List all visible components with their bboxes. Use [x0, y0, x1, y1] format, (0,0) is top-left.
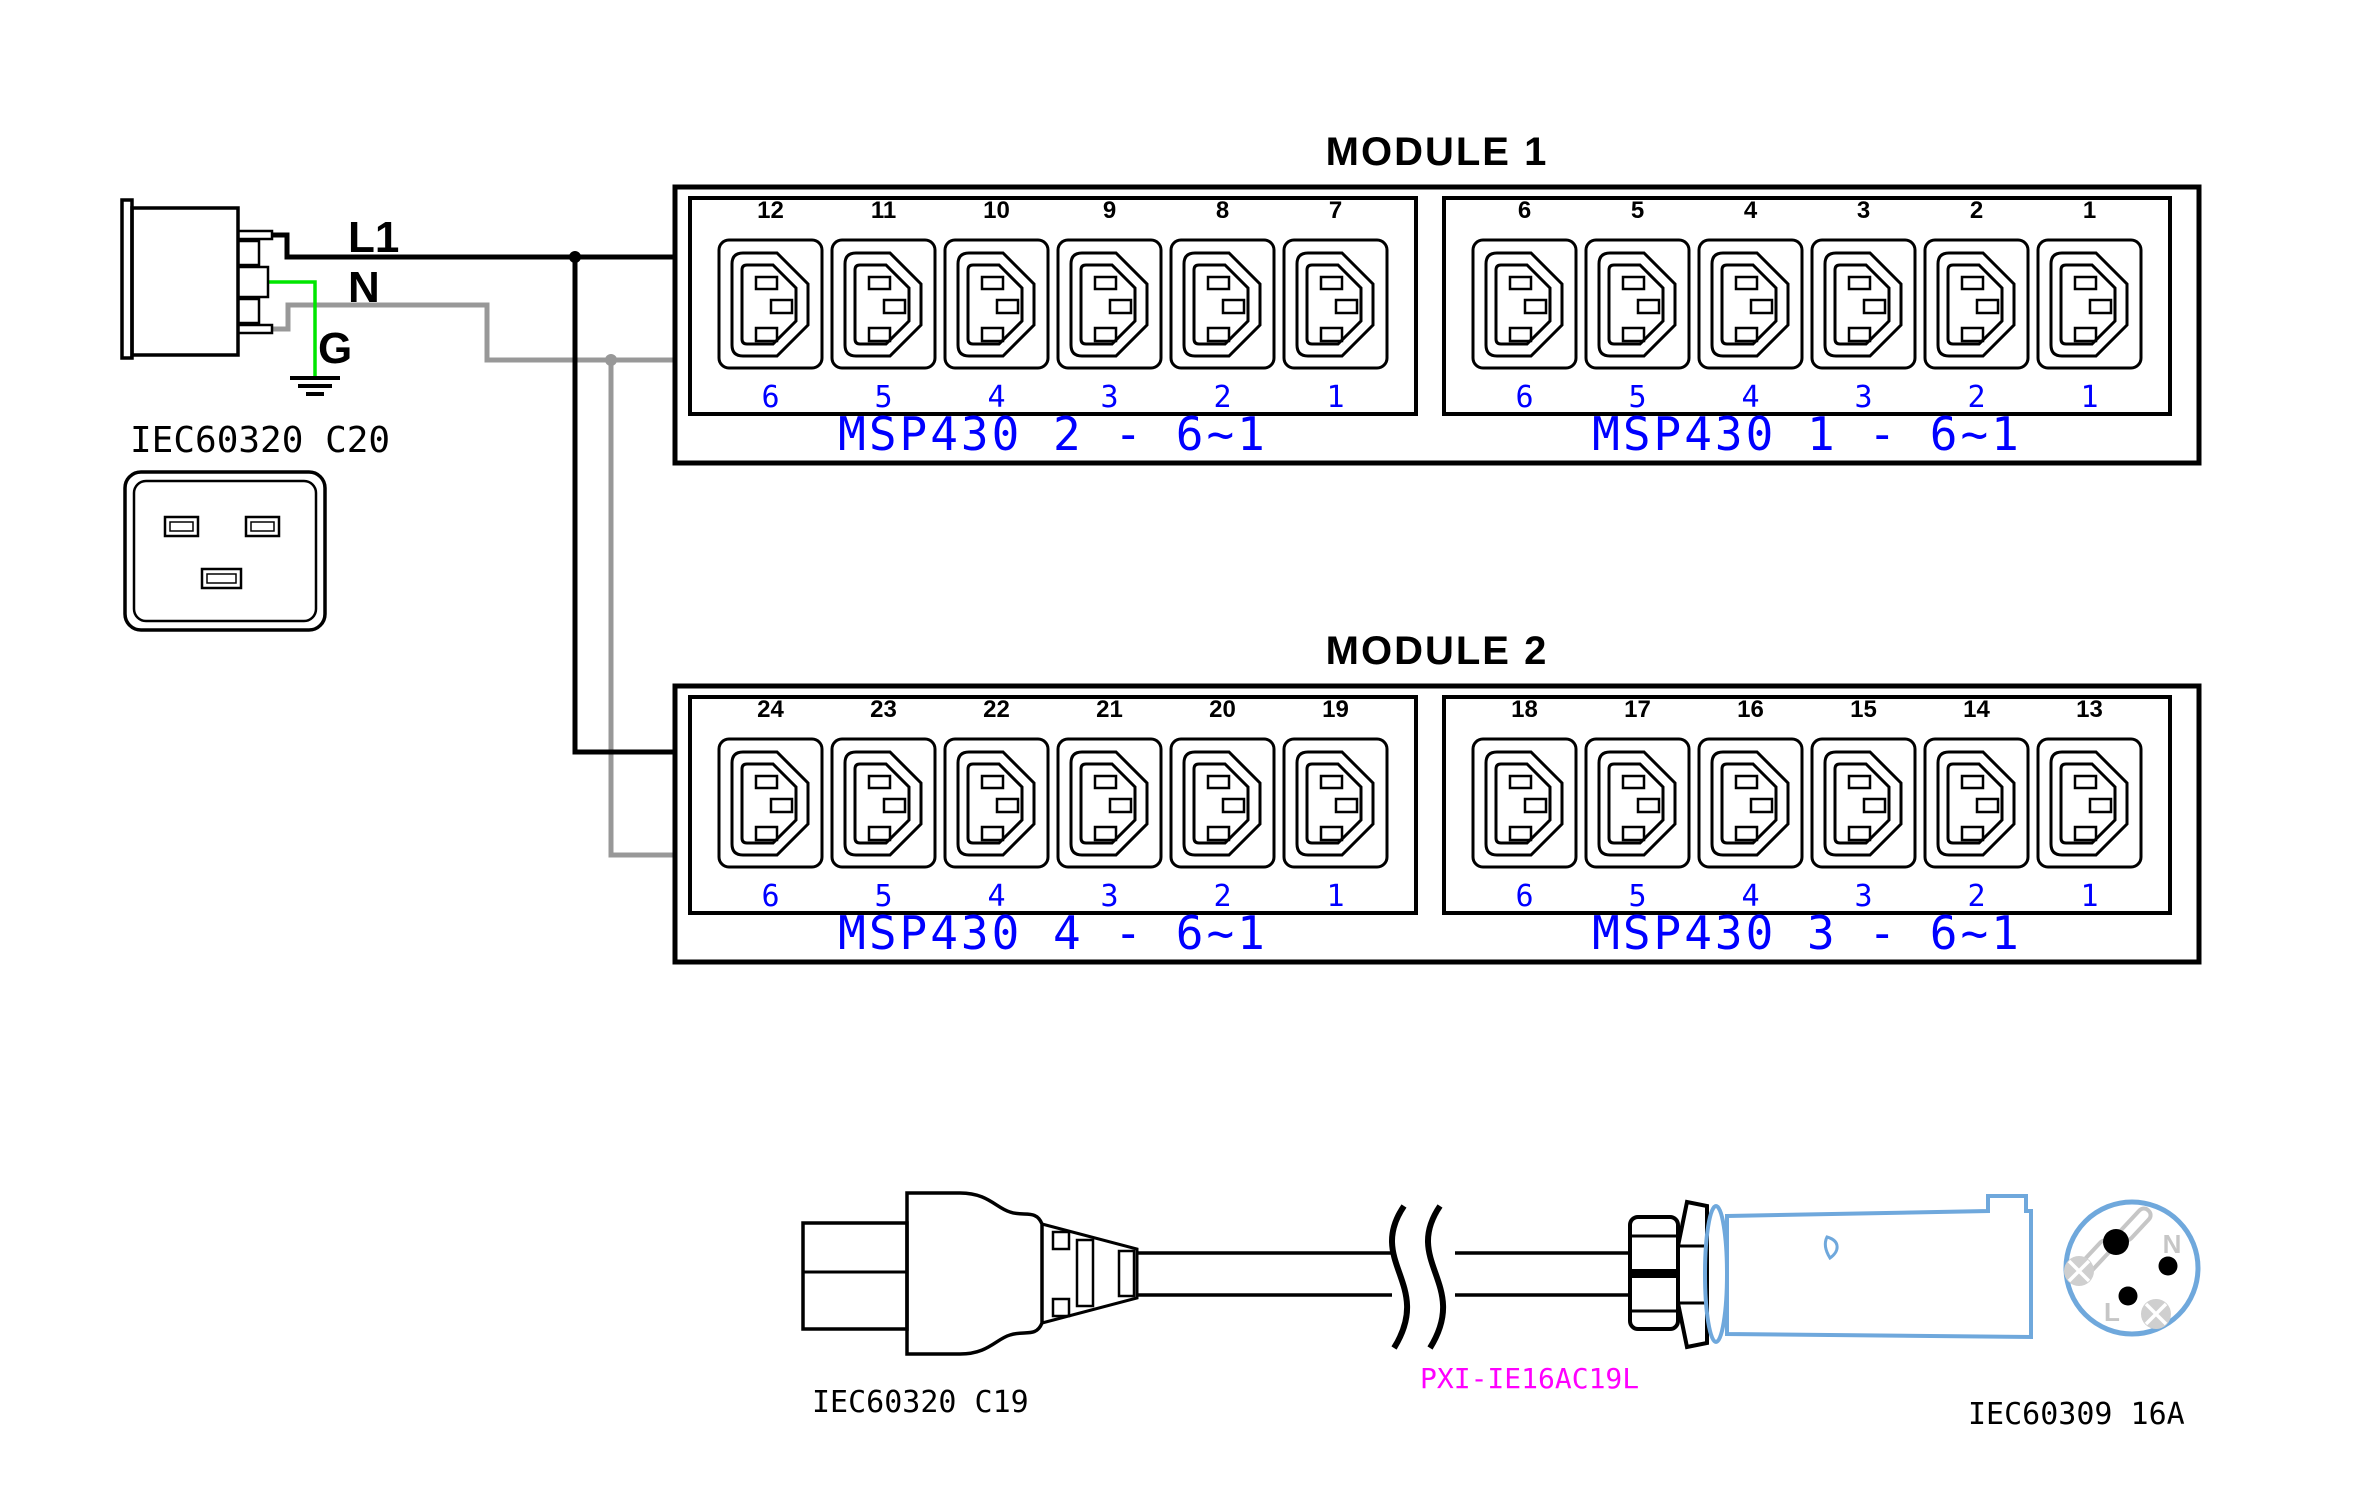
- port-number: 3: [1854, 380, 1872, 415]
- cable-break-left: [1392, 1206, 1407, 1348]
- c20-line-pin: [238, 241, 259, 265]
- cable-lines: [1137, 1253, 1630, 1295]
- outlet-slot-top: [1321, 277, 1342, 289]
- outlet-c13: [1058, 240, 1161, 368]
- outlet-number: 3: [1857, 197, 1870, 224]
- bank-label: MSP430 2 - 6~1: [838, 407, 1268, 461]
- bank-label: MSP430 1 - 6~1: [1592, 407, 2022, 461]
- outlet-slot-middle: [1864, 300, 1885, 313]
- outlet-slot-top: [1736, 776, 1757, 788]
- outlet-slot-middle: [1525, 799, 1546, 812]
- outlet-slot-middle: [1977, 300, 1998, 313]
- c19-connector-label: IEC60320 C19: [812, 1385, 1029, 1420]
- outlet-slot-middle: [2090, 799, 2111, 812]
- outlet-number: 12: [757, 197, 784, 224]
- port-number: 5: [1628, 380, 1646, 415]
- outlet-c13: [945, 739, 1048, 867]
- outlet-slot-top: [1849, 776, 1870, 788]
- outlet-number: 19: [1322, 696, 1349, 723]
- outlet-slot-bottom: [1208, 827, 1229, 840]
- outlet-slot-middle: [1525, 300, 1546, 313]
- outlet-slot-middle: [771, 799, 792, 812]
- port-number: 1: [2080, 879, 2098, 914]
- outlet-slot-bottom: [869, 827, 890, 840]
- c20-inlet-side-view: [122, 200, 272, 358]
- outlet-slot-middle: [1223, 799, 1244, 812]
- outlet-slot-middle: [771, 300, 792, 313]
- outlet-number: 15: [1850, 696, 1877, 723]
- outlet-number: 11: [871, 197, 896, 224]
- outlet-slot-bottom: [756, 328, 777, 341]
- ground-wire-label: G: [318, 324, 352, 373]
- port-number: 5: [874, 380, 892, 415]
- outlet-slot-top: [1510, 277, 1531, 289]
- plug-pin-earth: [2103, 1229, 2129, 1255]
- outlet-slot-middle: [884, 799, 905, 812]
- c20-neutral-terminal-tab: [238, 325, 272, 333]
- port-number: 4: [1741, 380, 1759, 415]
- diagram-canvas: L1 N G IEC60320 C20 MODULE 1MSP430 2 - 6…: [0, 0, 2357, 1509]
- outlet-c13: [1586, 240, 1689, 368]
- outlet-slot-bottom: [982, 328, 1003, 341]
- neutral-wire: [272, 305, 675, 855]
- pdu-wiring-diagram: L1 N G IEC60320 C20 MODULE 1MSP430 2 - 6…: [0, 0, 2357, 1509]
- c19-relief-end-slot: [1119, 1251, 1134, 1296]
- neutral-junction-dot: [605, 354, 617, 366]
- outlet-slot-bottom: [1736, 827, 1757, 840]
- outlet-slot-top: [756, 277, 777, 289]
- outlet-slot-middle: [2090, 300, 2111, 313]
- outlet-c13: [719, 240, 822, 368]
- outlet-slot-bottom: [1510, 328, 1531, 341]
- port-number: 2: [1213, 879, 1231, 914]
- c19-body: [907, 1193, 1042, 1354]
- outlet-c13: [1586, 739, 1689, 867]
- outlet-number: 24: [757, 696, 784, 723]
- outlet-slot-middle: [1223, 300, 1244, 313]
- c19-relief-slot: [1077, 1240, 1093, 1306]
- outlet-c13: [1171, 240, 1274, 368]
- outlet-slot-middle: [1977, 799, 1998, 812]
- outlet-slot-bottom: [1510, 827, 1531, 840]
- earth-ground-symbol: [290, 378, 340, 394]
- gland-nut-lines: [1678, 1246, 1707, 1303]
- outlet-c13: [1699, 240, 1802, 368]
- outlet-slot-bottom: [1962, 827, 1983, 840]
- neutral-wire-to-module2: [611, 360, 673, 855]
- outlet-slot-middle: [997, 300, 1018, 313]
- port-number: 2: [1213, 380, 1231, 415]
- c20-inlet-face-view: [125, 472, 325, 630]
- iec60309-plug-face-view: N L: [2064, 1202, 2198, 1334]
- outlet-number: 8: [1216, 197, 1229, 224]
- outlet-modules: MODULE 1MSP430 2 - 6~1126115104938271MSP…: [675, 130, 2199, 962]
- c20-line-terminal-tab: [238, 231, 272, 239]
- c20-face-slot-neutral: [246, 517, 279, 536]
- outlet-slot-middle: [997, 799, 1018, 812]
- line-wire-to-module2: [575, 257, 673, 752]
- outlet-slot-bottom: [1623, 328, 1644, 341]
- port-number: 5: [874, 879, 892, 914]
- plug-neutral-letter: N: [2163, 1229, 2182, 1259]
- port-number: 4: [987, 879, 1005, 914]
- module-title: MODULE 1: [1326, 130, 1549, 174]
- port-number: 1: [1326, 380, 1344, 415]
- outlet-c13: [2038, 739, 2141, 867]
- outlet-number: 9: [1103, 197, 1116, 224]
- outlet-slot-top: [1736, 277, 1757, 289]
- c20-face-outer: [125, 472, 325, 630]
- plug-line-letter: L: [2104, 1297, 2120, 1327]
- outlet-number: 21: [1096, 696, 1123, 723]
- outlet-c13: [1058, 739, 1161, 867]
- outlet-slot-top: [1208, 277, 1229, 289]
- outlet-number: 16: [1737, 696, 1764, 723]
- port-number: 2: [1967, 879, 1985, 914]
- gland-band: [1630, 1269, 1678, 1278]
- outlet-slot-bottom: [1208, 328, 1229, 341]
- c20-face-slot-ground: [202, 569, 241, 588]
- outlet-slot-bottom: [1849, 328, 1870, 341]
- outlet-number: 5: [1631, 197, 1644, 224]
- bank-label: MSP430 3 - 6~1: [1592, 906, 2022, 960]
- outlet-c13: [1812, 240, 1915, 368]
- c19-plug-side-view: [803, 1193, 1137, 1354]
- outlet-number: 7: [1329, 197, 1342, 224]
- port-number: 1: [1326, 879, 1344, 914]
- outlet-slot-bottom: [1623, 827, 1644, 840]
- outlet-slot-top: [1095, 776, 1116, 788]
- outlet-slot-middle: [884, 300, 905, 313]
- port-number: 5: [1628, 879, 1646, 914]
- outlet-slot-top: [2075, 776, 2096, 788]
- outlet-slot-top: [2075, 277, 2096, 289]
- outlet-c13: [1284, 240, 1387, 368]
- outlet-c13: [832, 739, 935, 867]
- cable-part-number: PXI-IE16AC19L: [1420, 1362, 1639, 1395]
- outlet-c13: [945, 240, 1048, 368]
- outlet-slot-bottom: [2075, 328, 2096, 341]
- outlet-number: 13: [2076, 696, 2103, 723]
- outlet-slot-top: [756, 776, 777, 788]
- outlet-slot-bottom: [1321, 827, 1342, 840]
- outlet-number: 18: [1511, 696, 1538, 723]
- outlet-slot-bottom: [1736, 328, 1757, 341]
- iec60309-connector-label: IEC60309 16A: [1968, 1397, 2185, 1432]
- c19-relief-notch-top: [1053, 1232, 1069, 1249]
- plug-pin-neutral: [2159, 1257, 2178, 1276]
- port-number: 1: [2080, 380, 2098, 415]
- outlet-slot-bottom: [1962, 328, 1983, 341]
- outlet-slot-bottom: [1095, 328, 1116, 341]
- module-2: MODULE 2MSP430 4 - 6~1246235224213202191…: [675, 629, 2199, 962]
- outlet-c13: [1925, 739, 2028, 867]
- plug-body: [1727, 1196, 2031, 1337]
- outlet-slot-top: [1321, 776, 1342, 788]
- port-number: 2: [1967, 380, 1985, 415]
- outlet-slot-top: [1095, 277, 1116, 289]
- port-number: 6: [1515, 879, 1533, 914]
- outlet-slot-middle: [1638, 300, 1659, 313]
- outlet-slot-top: [1623, 277, 1644, 289]
- c20-face-slot-line: [165, 517, 198, 536]
- outlet-slot-middle: [1638, 799, 1659, 812]
- outlet-c13: [1473, 739, 1576, 867]
- port-number: 3: [1854, 879, 1872, 914]
- outlet-number: 1: [2083, 197, 2096, 224]
- outlet-number: 4: [1744, 197, 1758, 224]
- outlet-slot-top: [1962, 277, 1983, 289]
- outlet-slot-top: [982, 277, 1003, 289]
- outlet-c13: [1925, 240, 2028, 368]
- port-number: 3: [1100, 879, 1118, 914]
- c19-face: [803, 1223, 907, 1329]
- outlet-slot-top: [1849, 277, 1870, 289]
- outlet-slot-top: [869, 277, 890, 289]
- line-wire-to-module1: [272, 235, 675, 257]
- plug-pin-line: [2119, 1287, 2138, 1306]
- outlet-slot-bottom: [869, 328, 890, 341]
- port-number: 3: [1100, 380, 1118, 415]
- outlet-slot-bottom: [1849, 827, 1870, 840]
- outlet-slot-middle: [1110, 300, 1131, 313]
- outlet-slot-top: [982, 776, 1003, 788]
- line-wire-label: L1: [348, 213, 399, 262]
- cable-gland: [1630, 1202, 1707, 1347]
- outlet-slot-middle: [1110, 799, 1131, 812]
- port-number: 4: [987, 380, 1005, 415]
- outlet-c13: [1473, 240, 1576, 368]
- c20-body: [132, 208, 238, 355]
- port-number: 6: [761, 879, 779, 914]
- c19-relief-notch-bottom: [1053, 1299, 1069, 1316]
- c20-inlet-label: IEC60320 C20: [130, 420, 390, 461]
- c20-neutral-pin: [238, 299, 259, 323]
- neutral-wire-label: N: [348, 263, 380, 312]
- power-cable: [1137, 1206, 1630, 1348]
- outlet-number: 22: [983, 696, 1010, 723]
- outlet-number: 20: [1209, 696, 1236, 723]
- outlet-c13: [2038, 240, 2141, 368]
- outlet-number: 14: [1963, 696, 1990, 723]
- port-number: 6: [1515, 380, 1533, 415]
- outlet-number: 10: [983, 197, 1010, 224]
- outlet-slot-middle: [1751, 799, 1772, 812]
- outlet-number: 17: [1624, 696, 1651, 723]
- outlet-slot-bottom: [982, 827, 1003, 840]
- outlet-slot-bottom: [756, 827, 777, 840]
- bank-label: MSP430 4 - 6~1: [838, 906, 1268, 960]
- outlet-slot-top: [869, 776, 890, 788]
- outlet-number: 6: [1518, 197, 1531, 224]
- outlet-slot-bottom: [1095, 827, 1116, 840]
- outlet-slot-top: [1208, 776, 1229, 788]
- c20-face-inner: [134, 481, 316, 621]
- outlet-slot-middle: [1864, 799, 1885, 812]
- outlet-c13: [719, 739, 822, 867]
- outlet-slot-bottom: [2075, 827, 2096, 840]
- outlet-slot-middle: [1751, 300, 1772, 313]
- outlet-slot-top: [1962, 776, 1983, 788]
- cable-break-right: [1428, 1206, 1443, 1348]
- gland-nut: [1678, 1202, 1707, 1347]
- outlet-number: 2: [1970, 197, 1983, 224]
- outlet-slot-bottom: [1321, 328, 1342, 341]
- module-title: MODULE 2: [1326, 629, 1549, 673]
- outlet-number: 23: [870, 696, 897, 723]
- outlet-c13: [1284, 739, 1387, 867]
- outlet-slot-top: [1510, 776, 1531, 788]
- port-number: 4: [1741, 879, 1759, 914]
- module-1: MODULE 1MSP430 2 - 6~1126115104938271MSP…: [675, 130, 2199, 463]
- line-wire: [272, 235, 675, 752]
- outlet-slot-middle: [1336, 799, 1357, 812]
- iec60309-plug-side-view: [1705, 1196, 2031, 1342]
- line-junction-dot: [569, 251, 581, 263]
- outlet-c13: [832, 240, 935, 368]
- c20-ground-pin: [238, 267, 268, 297]
- outlet-c13: [1812, 739, 1915, 867]
- outlet-slot-middle: [1336, 300, 1357, 313]
- outlet-c13: [1171, 739, 1274, 867]
- outlet-c13: [1699, 739, 1802, 867]
- outlet-slot-top: [1623, 776, 1644, 788]
- port-number: 6: [761, 380, 779, 415]
